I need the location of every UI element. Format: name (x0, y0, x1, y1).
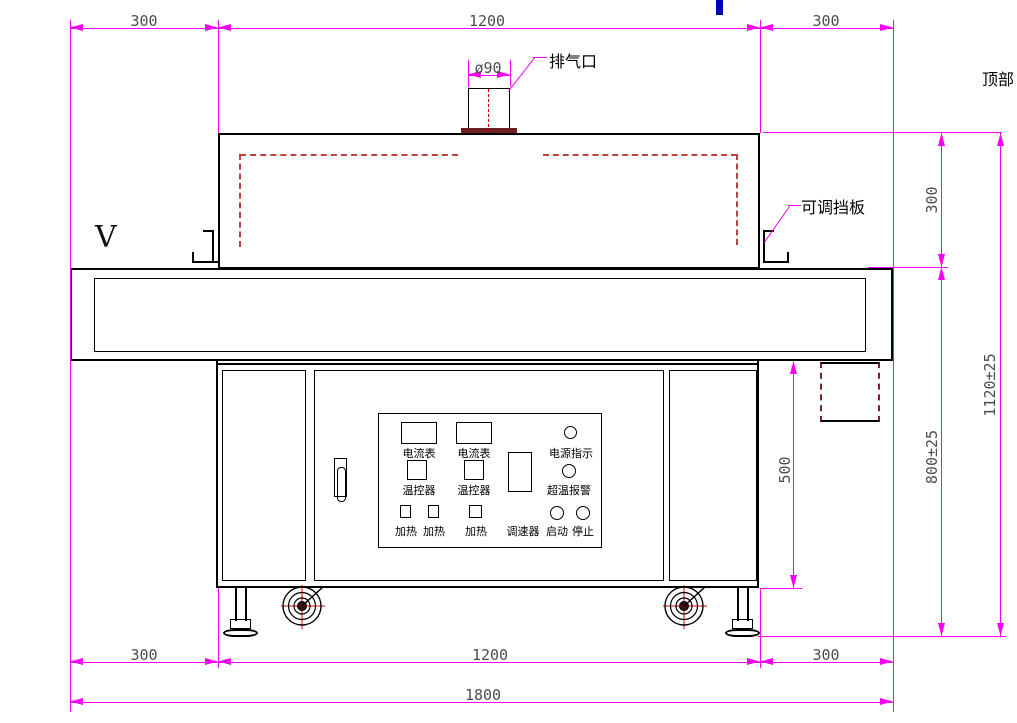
arrowhead (205, 24, 218, 31)
arrowhead (205, 658, 218, 665)
ammeter-label-2: 电流表 (442, 445, 506, 461)
temp-controller-2 (464, 460, 484, 480)
ext-line-x760-top (760, 20, 761, 133)
ammeter-display-2 (456, 422, 492, 444)
right-baffle-bracket (787, 252, 789, 263)
door-handle-grip (337, 467, 346, 502)
right-baffle-bracket (763, 261, 789, 263)
speed-controller-knob (508, 452, 532, 492)
adjustable-baffle-label: 可调挡板 (801, 194, 865, 218)
cabinet-left-wall (216, 361, 218, 588)
arrowhead (997, 133, 1004, 146)
ext-line-x760-bottom (760, 588, 761, 668)
duct-dashed-left (239, 154, 241, 247)
leveling-foot-right-base (725, 629, 760, 637)
caster-wheel-right (662, 584, 708, 630)
arrowhead (70, 698, 83, 705)
arrowhead (760, 24, 773, 31)
arrowhead (218, 658, 231, 665)
right-baffle-bracket (763, 230, 765, 263)
temp-controller-1 (407, 460, 427, 480)
speed-controller-label: 调速器 (506, 523, 540, 539)
exhaust-leader-horizontal (533, 57, 547, 58)
stop-label: 停止 (571, 523, 595, 539)
exhaust-chimney (468, 88, 510, 133)
start-label: 启动 (545, 523, 569, 539)
leveling-foot-right-collar (732, 619, 753, 629)
ammeter-display-1 (401, 422, 437, 444)
dim-text-bottom-center: 1200 (450, 646, 530, 664)
left-baffle-bracket (192, 261, 218, 263)
duct-dashed-top-left (240, 154, 458, 156)
heater-label-1: 加热 (394, 523, 418, 539)
conveyor-inner (94, 278, 866, 352)
dim-text-bottom-right: 300 (796, 646, 856, 664)
stop-button (576, 506, 590, 520)
ext-line-x218-top (218, 20, 219, 133)
overtemp-alarm-label: 超温报警 (545, 482, 593, 498)
dim-text-cabinet-height: 500 (776, 430, 794, 510)
heater-label-2: 加热 (422, 523, 446, 539)
blue-mark (716, 0, 723, 15)
heater-label-3: 加热 (464, 523, 488, 539)
baffle-leader-horizontal (788, 205, 801, 206)
dim-text-bottom-left: 300 (114, 646, 174, 664)
start-button (550, 506, 564, 520)
dim-text-tunnel-height: 300 (923, 160, 941, 240)
dim-line-total-height (1000, 133, 1001, 636)
dim-text-total-height: 1120±25 (981, 345, 999, 425)
exhaust-flange (461, 128, 517, 133)
power-indicator-lamp (564, 426, 577, 439)
arrowhead (938, 623, 945, 636)
dim-text-top-left: 300 (114, 12, 174, 30)
arrowhead (880, 24, 893, 31)
cabinet-right-panel (669, 370, 757, 581)
dim-text-body-height: 800±25 (923, 417, 941, 497)
overtemp-alarm-lamp (562, 464, 576, 478)
arrowhead (747, 658, 760, 665)
ext-line-x218-bottom (218, 588, 219, 668)
dim-line-tunnel-height (941, 133, 942, 267)
arrowhead (70, 24, 83, 31)
arrowhead (880, 698, 893, 705)
engineering-drawing-canvas: V 电流表 电流表 电源指示 温控器 温控器 超温报警 加热 加热 加热 调速器 (0, 0, 1017, 723)
dim-text-phi90: ø90 (458, 59, 518, 77)
arrowhead (70, 658, 83, 665)
leveling-foot-right-post (737, 588, 749, 621)
arrowhead (997, 623, 1004, 636)
leveling-foot-left-base (223, 629, 258, 637)
top-label: 顶部 (982, 66, 1014, 90)
heater-switch-2 (428, 505, 439, 518)
caster-wheel-left (280, 584, 326, 630)
ext-line-right (893, 20, 894, 712)
cabinet-right-wall (757, 361, 759, 588)
ext-line-left (70, 20, 71, 712)
baffle-leader-diagonal (764, 206, 790, 243)
heater-switch-1 (400, 505, 411, 518)
cabinet-top-line (218, 363, 758, 365)
power-indicator-label: 电源指示 (543, 445, 599, 461)
dim-line-body-height (941, 267, 942, 636)
dim-text-top-right: 300 (796, 12, 856, 30)
arrowhead (938, 267, 945, 280)
right-hanging-box (820, 362, 880, 422)
arrowhead (938, 133, 945, 146)
arrowhead (790, 575, 797, 588)
arrowhead (218, 24, 231, 31)
view-marker-v: V (95, 220, 117, 255)
duct-dashed-top-right (543, 154, 737, 156)
arrowhead (760, 658, 773, 665)
left-baffle-bracket (192, 252, 194, 263)
ext-line-top-right-horizontal (763, 132, 1002, 133)
left-baffle-bracket (203, 230, 214, 232)
heater-switch-3 (469, 505, 482, 518)
arrowhead (747, 24, 760, 31)
ext-line-mid-right-horizontal (868, 267, 948, 268)
temp-controller-label-2: 温控器 (442, 482, 506, 498)
exhaust-port-label: 排气口 (549, 48, 597, 72)
left-baffle-bracket (212, 230, 214, 263)
leveling-foot-left-collar (230, 619, 251, 629)
cabinet-left-panel (222, 370, 306, 581)
leveling-foot-left-post (235, 588, 247, 621)
dim-text-overall-width: 1800 (443, 686, 523, 704)
exhaust-centerline (488, 89, 489, 132)
control-panel: 电流表 电流表 电源指示 温控器 温控器 超温报警 加热 加热 加热 调速器 启… (378, 413, 602, 548)
arrowhead (938, 254, 945, 267)
ext-line-cabinet-base-right (760, 588, 802, 589)
dim-text-top-center: 1200 (447, 12, 527, 30)
duct-dashed-right (736, 154, 738, 245)
arrowhead (790, 361, 797, 374)
ext-line-bottom-right-horizontal (758, 636, 1006, 637)
arrowhead (880, 658, 893, 665)
